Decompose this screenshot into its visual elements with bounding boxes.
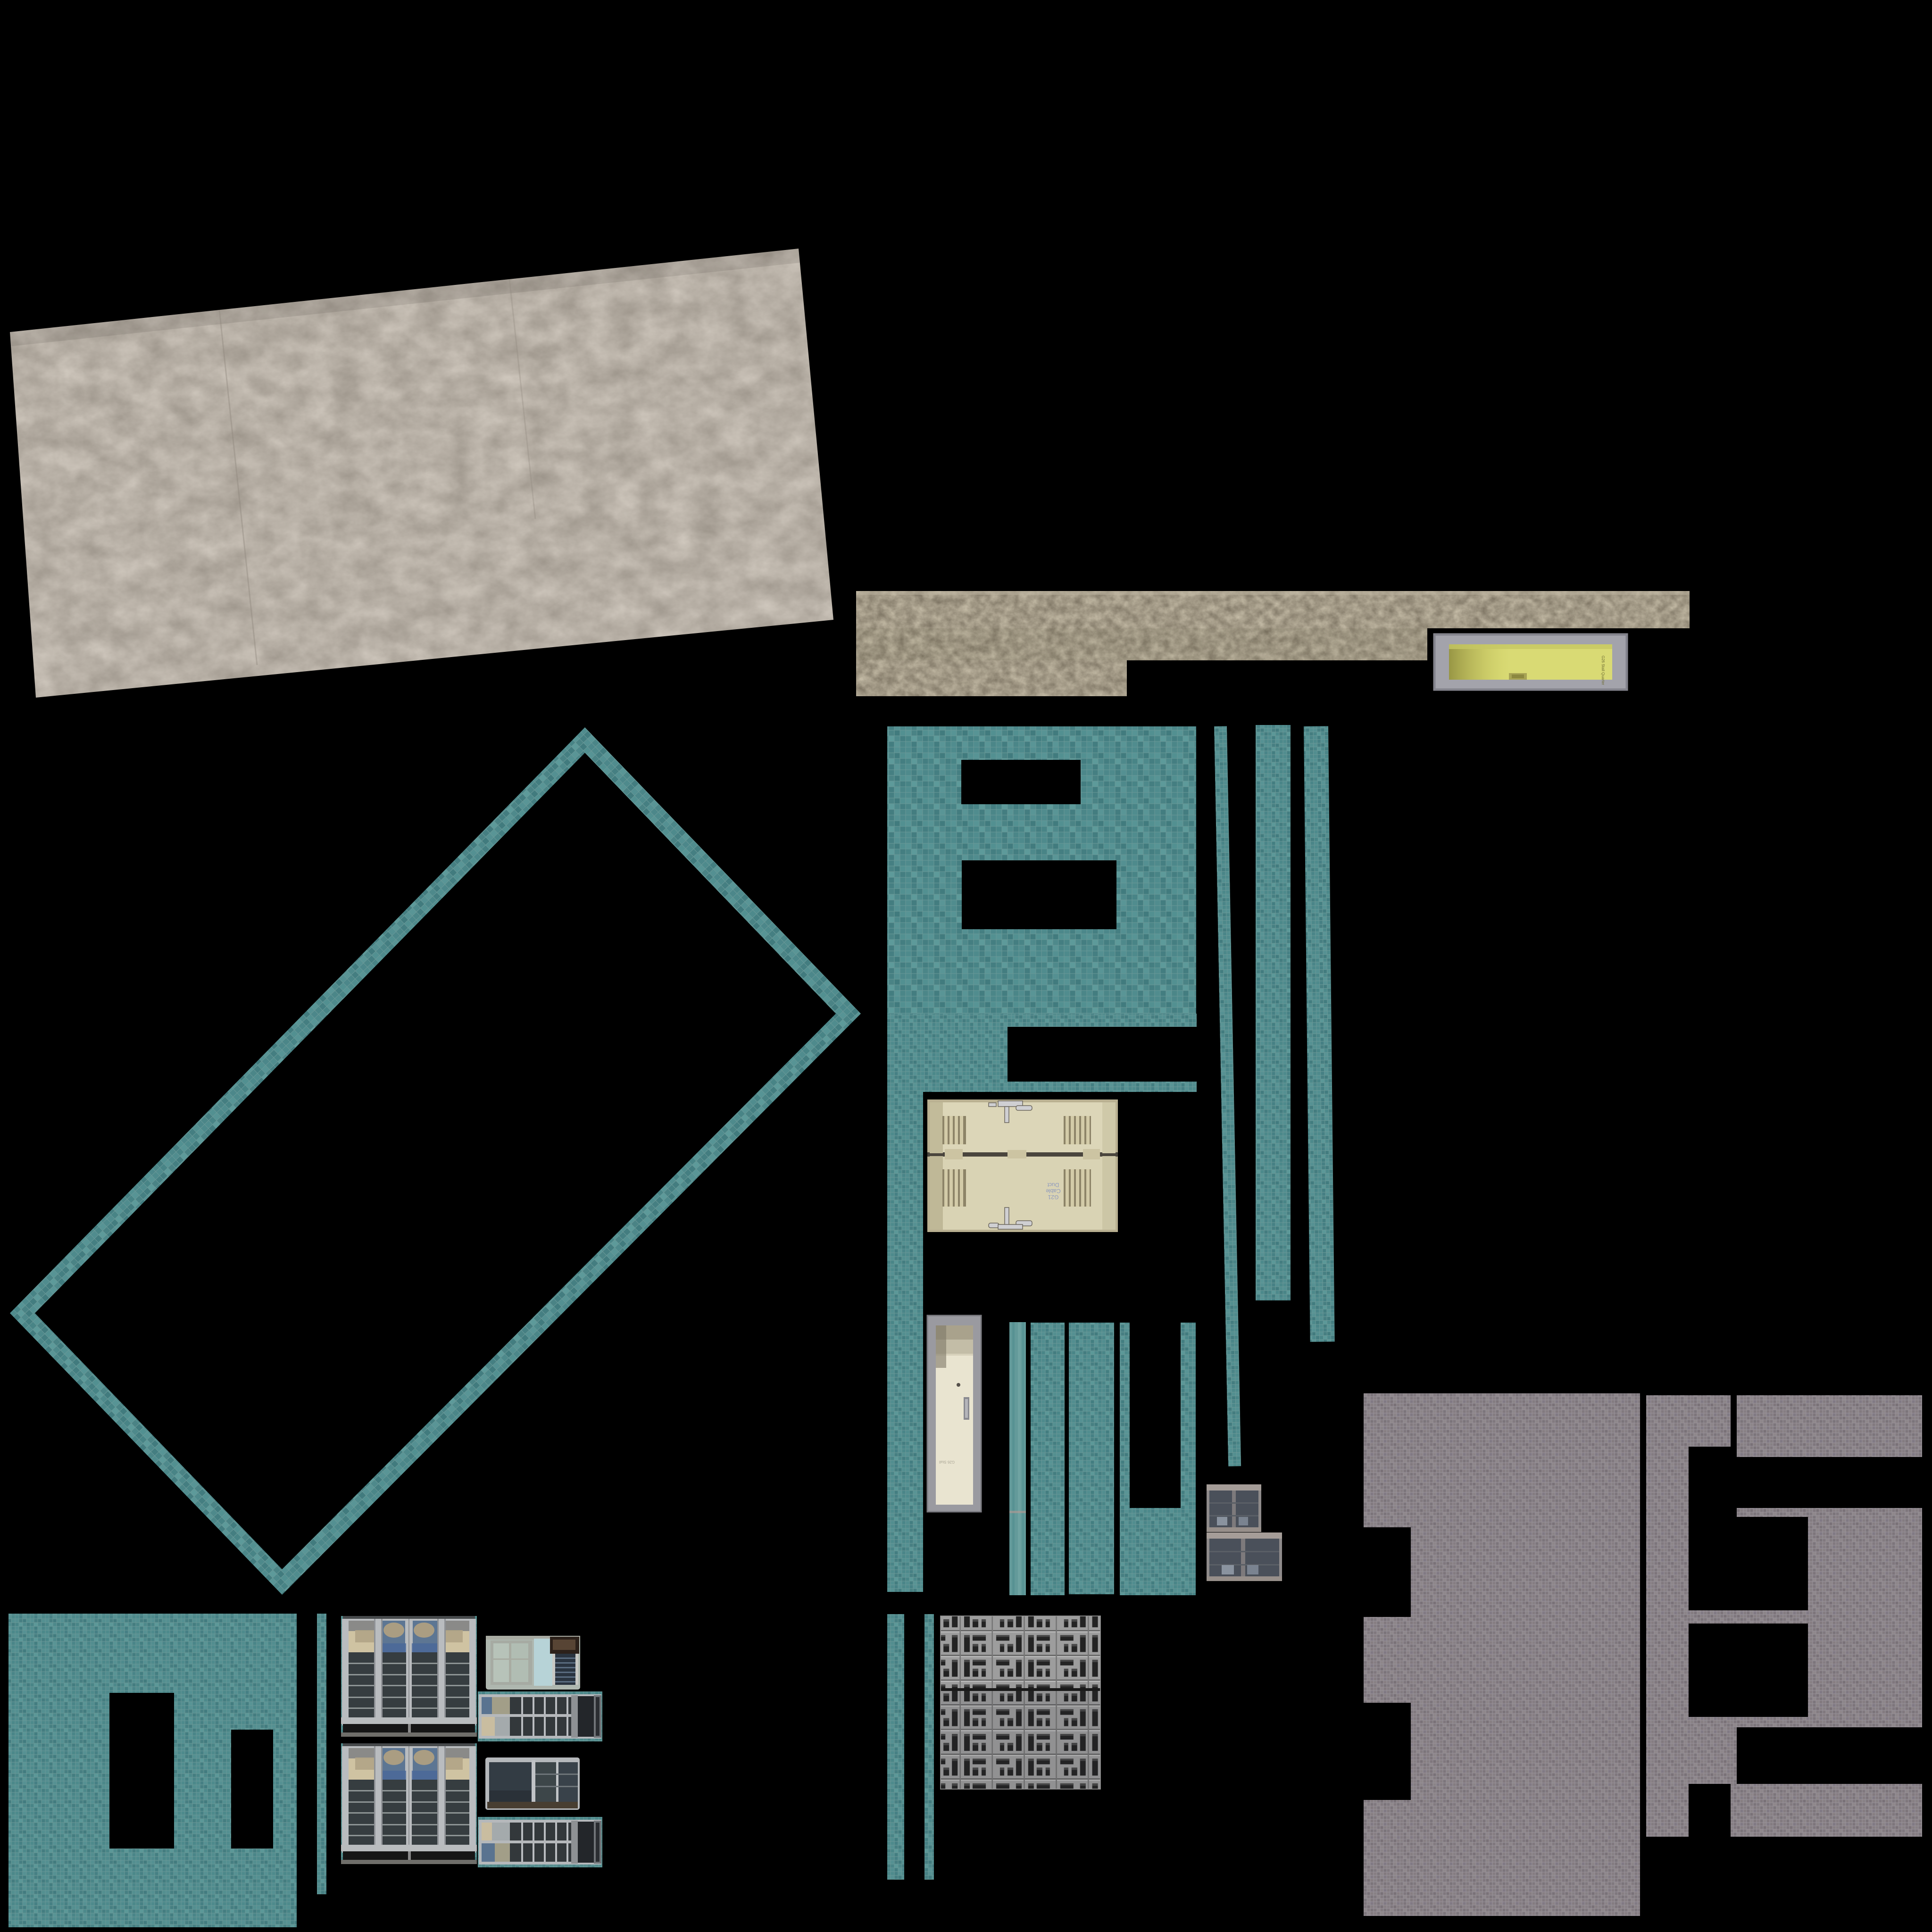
svg-text:Cable: Cable xyxy=(1046,1188,1061,1194)
svg-text:Duct: Duct xyxy=(1047,1182,1059,1188)
svg-text:G26 Stall Quarter: G26 Stall Quarter xyxy=(1601,656,1605,685)
svg-text:G26 Stall: G26 Stall xyxy=(939,1460,955,1464)
svg-text:G21: G21 xyxy=(1048,1194,1058,1200)
